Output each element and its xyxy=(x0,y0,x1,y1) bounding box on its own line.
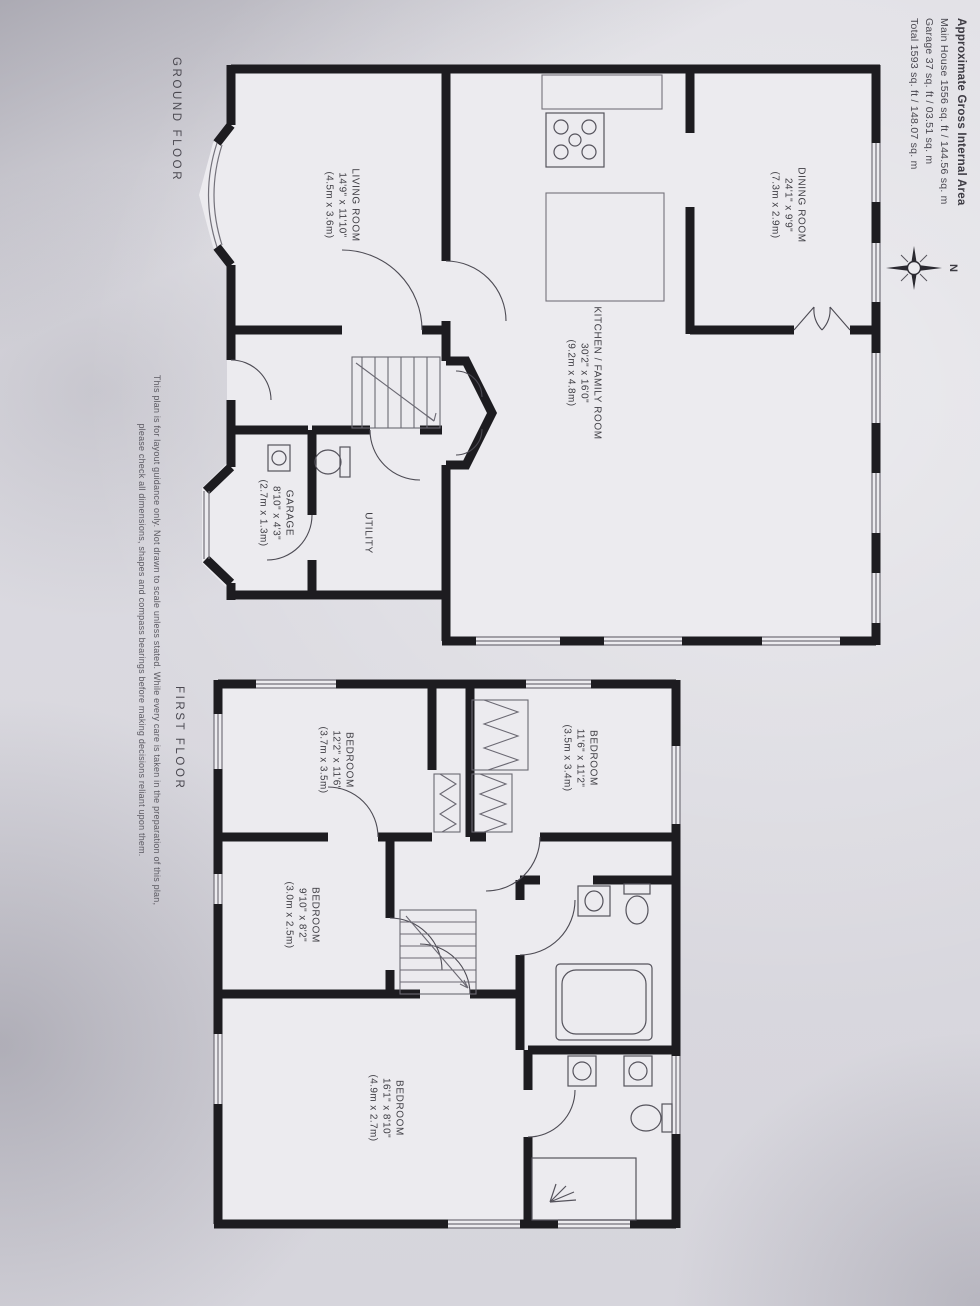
ground-footprint xyxy=(199,65,880,645)
area-summary: Approximate Gross Internal Area Main Hou… xyxy=(906,18,968,206)
area-total: Total 1593 sq. ft / 148.07 sq. m xyxy=(906,18,921,206)
ground-floor-title: GROUND FLOOR xyxy=(170,57,182,182)
room-label-bedroom2: BEDROOM 12'2" x 11'6" (3.7m x 3.5m) xyxy=(317,727,356,794)
room-label-garage: GARAGE 8'10" x 4'3" (2.7m x 1.3m) xyxy=(257,480,296,547)
compass-icon: N xyxy=(880,238,964,298)
ground-floor-plan: DINING ROOM 24'1" x 9'9" (7.3m x 2.9m) K… xyxy=(190,55,890,675)
room-label-kitchen: KITCHEN / FAMILY ROOM 30'2" x 16'0" (9.2… xyxy=(565,306,604,439)
area-garage: Garage 37 sq. ft / 03.51 sq. m xyxy=(921,18,936,206)
first-floor-plan: BEDROOM 11'6" x 11'2" (3.5m x 3.4m) BEDR… xyxy=(203,672,688,1237)
room-label-utility: UTILITY xyxy=(362,512,375,553)
floorplan-sheet: Approximate Gross Internal Area Main Hou… xyxy=(0,0,980,1306)
room-label-bedroom4: BEDROOM 16'1" x 8'10" (4.9m x 2.7m) xyxy=(367,1075,406,1142)
first-floor-drawing xyxy=(203,672,688,1237)
area-summary-title: Approximate Gross Internal Area xyxy=(953,18,968,206)
ground-floor-drawing xyxy=(190,55,890,675)
room-label-bedroom3: BEDROOM 9'10" x 8'2" (3.0m x 2.5m) xyxy=(283,882,322,949)
compass-north-label: N xyxy=(947,264,959,272)
room-label-dining: DINING ROOM 24'1" x 9'9" (7.3m x 2.9m) xyxy=(769,167,808,243)
room-label-living: LIVING ROOM 14'9" x 11'10" (4.5m x 3.6m) xyxy=(323,168,362,241)
floorplan-photo: Approximate Gross Internal Area Main Hou… xyxy=(0,0,980,1306)
room-label-bedroom1: BEDROOM 11'6" x 11'2" (3.5m x 3.4m) xyxy=(561,725,600,792)
first-floor-title: FIRST FLOOR xyxy=(173,686,185,790)
disclaimer-line2: please check all dimensions, shapes and … xyxy=(137,350,147,930)
first-footprint xyxy=(214,680,680,1228)
area-main-house: Main House 1556 sq. ft / 144.56 sq. m xyxy=(936,18,951,206)
disclaimer-line1: This plan is for layout guidance only. N… xyxy=(152,350,162,930)
